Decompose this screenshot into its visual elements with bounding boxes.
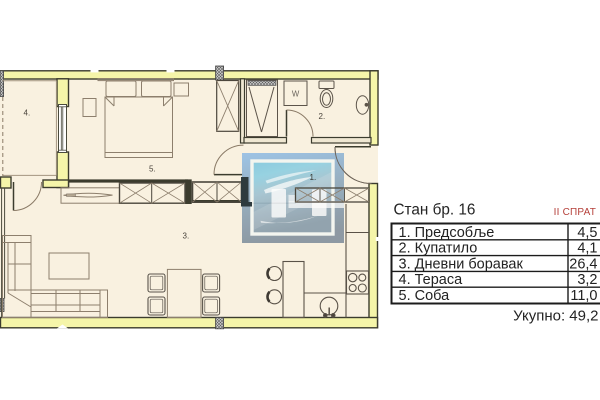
svg-text:11,0: 11,0 <box>570 288 597 304</box>
svg-text:II СПРАТ: II СПРАТ <box>554 207 596 218</box>
svg-text:3,2: 3,2 <box>577 272 597 288</box>
svg-text:4. Тераса: 4. Тераса <box>399 272 464 288</box>
svg-text:3.: 3. <box>183 232 190 241</box>
svg-text:26,4: 26,4 <box>569 256 597 272</box>
svg-text:Укупно: 49,2: Укупно: 49,2 <box>513 308 598 325</box>
svg-text:5.: 5. <box>149 165 156 174</box>
svg-text:3. Дневни боравак: 3. Дневни боравак <box>399 256 524 272</box>
svg-text:4,5: 4,5 <box>577 225 597 241</box>
svg-text:2. Купатило: 2. Купатило <box>399 241 478 257</box>
svg-text:1. Предсобље: 1. Предсобље <box>399 225 495 241</box>
svg-text:5. Соба: 5. Соба <box>399 288 451 304</box>
svg-text:4,1: 4,1 <box>577 241 597 257</box>
svg-text:1.: 1. <box>310 173 317 182</box>
svg-text:4.: 4. <box>24 109 31 118</box>
svg-text:W: W <box>292 90 300 99</box>
svg-text:2.: 2. <box>319 112 326 121</box>
svg-text:Стан бр. 16: Стан бр. 16 <box>394 202 476 219</box>
